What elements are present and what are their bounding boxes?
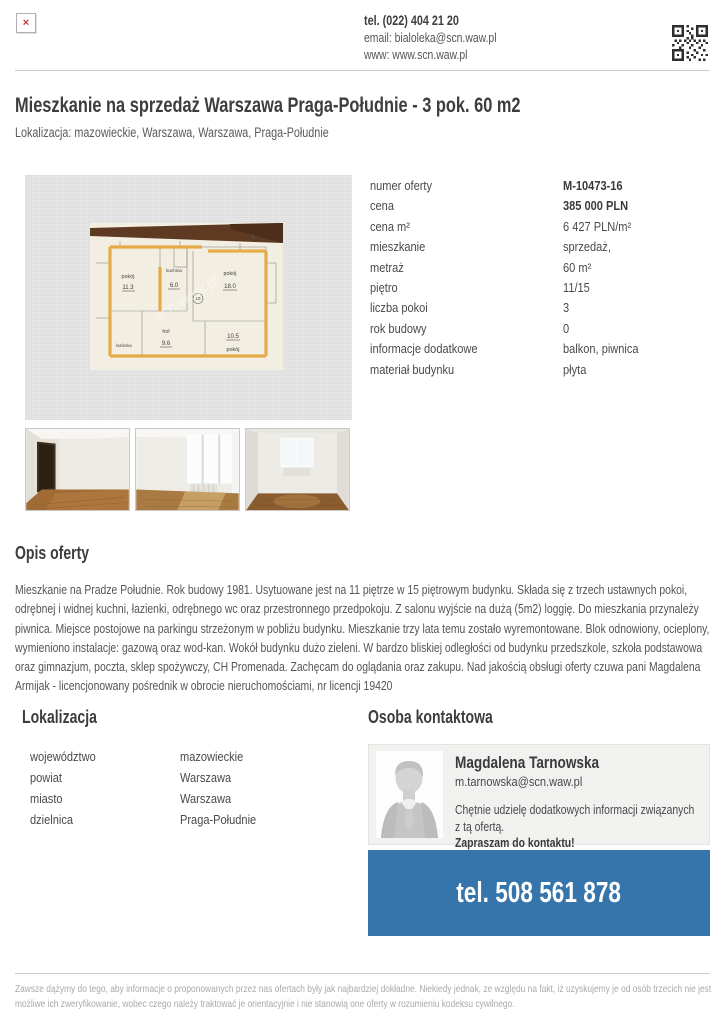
table-row: dzielnicaPraga-Południe bbox=[30, 809, 360, 830]
thumbnail-room-3[interactable] bbox=[245, 428, 350, 511]
location-value: Warszawa bbox=[180, 788, 360, 809]
detail-label: rok budowy bbox=[370, 319, 563, 339]
floorplan-corner-digit: 9 bbox=[251, 234, 255, 241]
location-label: miasto bbox=[30, 788, 180, 809]
floorplan-kitchen-label: kuchnia bbox=[166, 268, 182, 273]
detail-value: sprzedaż, bbox=[563, 237, 715, 257]
agent-info: Magdalena Tarnowska m.tarnowska@scn.waw.… bbox=[455, 753, 705, 852]
photo-thumbnails bbox=[25, 428, 350, 511]
phone-banner[interactable]: tel. 508 561 878 bbox=[368, 850, 710, 936]
detail-value: 6 427 PLN/m² bbox=[563, 217, 715, 237]
agent-avatar bbox=[376, 751, 443, 838]
location-label: województwo bbox=[30, 746, 180, 767]
table-row: cena m²6 427 PLN/m² bbox=[370, 217, 715, 237]
floorplan-room-left-area: 11.3 bbox=[122, 285, 134, 291]
detail-label: piętro bbox=[370, 278, 563, 298]
main-photo[interactable]: pokój 11.3 kuchnia 6.0 pokój 18.0 hol 9.… bbox=[25, 175, 352, 420]
detail-value: 60 m² bbox=[563, 258, 715, 278]
floorplan-kitchen-area: 6.0 bbox=[170, 283, 179, 289]
floorplan-image: pokój 11.3 kuchnia 6.0 pokój 18.0 hol 9.… bbox=[90, 223, 283, 370]
agent-email[interactable]: m.tarnowska@scn.waw.pl bbox=[455, 773, 705, 790]
location-value: Warszawa bbox=[180, 767, 360, 788]
thumbnail-room-1[interactable] bbox=[25, 428, 130, 511]
table-row: powiatWarszawa bbox=[30, 767, 360, 788]
location-label: dzielnica bbox=[30, 809, 180, 830]
details-table: numer ofertyM-10473-16 cena385 000 PLN c… bbox=[370, 176, 715, 380]
table-row: mieszkaniesprzedaż, bbox=[370, 237, 715, 257]
location-value: Praga-Południe bbox=[180, 809, 360, 830]
location-label: powiat bbox=[30, 767, 180, 788]
header-divider bbox=[15, 70, 710, 71]
detail-label: mieszkanie bbox=[370, 237, 563, 257]
agent-message: Chętnie udzielę dodatkowych informacji z… bbox=[455, 802, 725, 852]
floorplan-room-bottom-area: 10.5 bbox=[227, 334, 239, 340]
phone-banner-text: tel. 508 561 878 bbox=[457, 877, 622, 910]
table-row: materiał budynkupłyta bbox=[370, 360, 715, 380]
page-subtitle: Lokalizacja: mazowieckie, Warszawa, Wars… bbox=[15, 125, 407, 140]
detail-value: 385 000 PLN bbox=[563, 196, 715, 216]
header-email[interactable]: email: bialoleka@scn.waw.pl bbox=[364, 29, 530, 46]
detail-value: balkon, piwnica bbox=[563, 339, 715, 359]
footer-divider bbox=[15, 973, 710, 974]
floorplan-room-right-label: pokój bbox=[224, 271, 237, 277]
thumbnail-room-2[interactable] bbox=[135, 428, 240, 511]
location-heading: Lokalizacja bbox=[22, 707, 118, 728]
table-row: rok budowy0 bbox=[370, 319, 715, 339]
detail-label: liczba pokoi bbox=[370, 298, 563, 318]
description-text: Mieszkanie na Pradze Południe. Rok budow… bbox=[15, 580, 713, 696]
table-row: piętro11/15 bbox=[370, 278, 715, 298]
agent-name: Magdalena Tarnowska bbox=[455, 753, 705, 773]
table-row: liczba pokoi3 bbox=[370, 298, 715, 318]
header-phone: tel. (022) 404 21 20 bbox=[364, 12, 530, 29]
detail-value: M-10473-16 bbox=[563, 176, 715, 196]
detail-value: 0 bbox=[563, 319, 715, 339]
qr-code-icon bbox=[672, 25, 708, 61]
detail-value: 11/15 bbox=[563, 278, 715, 298]
floorplan-hall-label: hol bbox=[162, 329, 169, 335]
detail-label: cena m² bbox=[370, 217, 563, 237]
description-heading: Opis oferty bbox=[15, 543, 110, 564]
agent-message-line1: Chętnie udzielę dodatkowych informacji z… bbox=[455, 802, 695, 835]
floorplan-bathroom-label: łazienka bbox=[116, 343, 132, 348]
location-table: województwomazowieckie powiatWarszawa mi… bbox=[30, 746, 360, 830]
location-value: mazowieckie bbox=[180, 746, 360, 767]
floorplan-room-right-area: 18.0 bbox=[224, 284, 236, 290]
detail-label: numer oferty bbox=[370, 176, 563, 196]
person-silhouette-icon bbox=[376, 751, 443, 838]
page-subtitle-text: Lokalizacja: mazowieckie, Warszawa, Wars… bbox=[15, 125, 329, 140]
broken-image-icon: × bbox=[16, 13, 36, 33]
header-phone-text: tel. (022) 404 21 20 bbox=[364, 12, 459, 29]
offer-page: × tel. (022) 404 21 20 email: bialoleka@… bbox=[0, 0, 725, 1024]
table-row: cena385 000 PLN bbox=[370, 196, 715, 216]
table-row: miastoWarszawa bbox=[30, 788, 360, 809]
detail-label: cena bbox=[370, 196, 563, 216]
header-www-text[interactable]: www: www.scn.waw.pl bbox=[364, 46, 467, 63]
contact-card: Magdalena Tarnowska m.tarnowska@scn.waw.… bbox=[368, 744, 710, 845]
header-email-text[interactable]: email: bialoleka@scn.waw.pl bbox=[364, 29, 497, 46]
detail-label: materiał budynku bbox=[370, 360, 563, 380]
table-row: województwomazowieckie bbox=[30, 746, 360, 767]
table-row: numer ofertyM-10473-16 bbox=[370, 176, 715, 196]
detail-label: metraż bbox=[370, 258, 563, 278]
table-row: informacje dodatkowebalkon, piwnica bbox=[370, 339, 715, 359]
page-title: Mieszkanie na sprzedaż Warszawa Praga-Po… bbox=[15, 94, 663, 118]
header-www[interactable]: www: www.scn.waw.pl bbox=[364, 46, 530, 63]
floorplan-room-bottom-label: pokój bbox=[227, 347, 240, 353]
detail-label: informacje dodatkowe bbox=[370, 339, 563, 359]
contact-heading: Osoba kontaktowa bbox=[368, 707, 528, 728]
floorplan-room-left-label: pokój bbox=[122, 274, 135, 280]
footer-disclaimer: Zawsze dążymy do tego, aby informacje o … bbox=[15, 982, 713, 1011]
floorplan-hall-area: 9.6 bbox=[162, 341, 171, 347]
table-row: metraż60 m² bbox=[370, 258, 715, 278]
page-title-text: Mieszkanie na sprzedaż Warszawa Praga-Po… bbox=[15, 94, 521, 118]
detail-value: 3 bbox=[563, 298, 715, 318]
detail-value: płyta bbox=[563, 360, 715, 380]
header-contact-block: tel. (022) 404 21 20 email: bialoleka@sc… bbox=[364, 12, 530, 63]
